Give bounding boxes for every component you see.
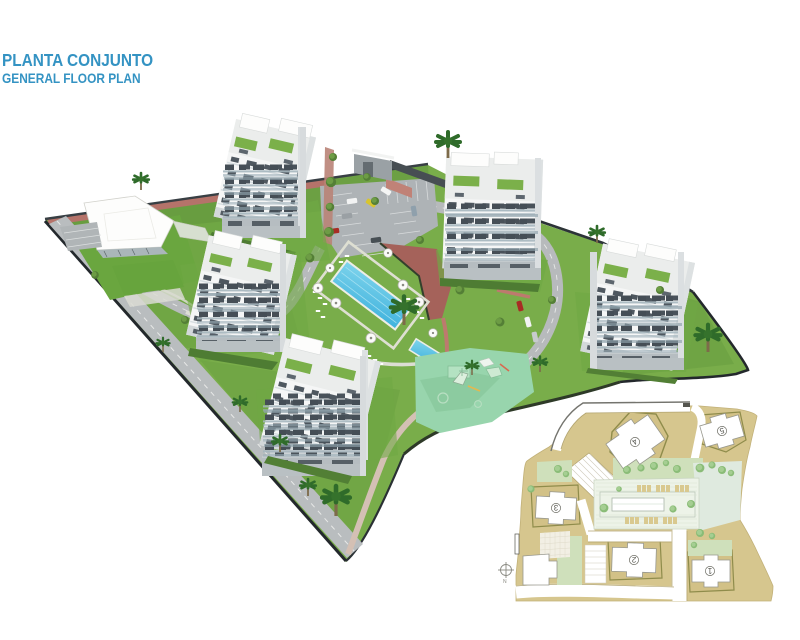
svg-text:1: 1 (707, 566, 712, 575)
svg-text:N: N (503, 579, 507, 585)
